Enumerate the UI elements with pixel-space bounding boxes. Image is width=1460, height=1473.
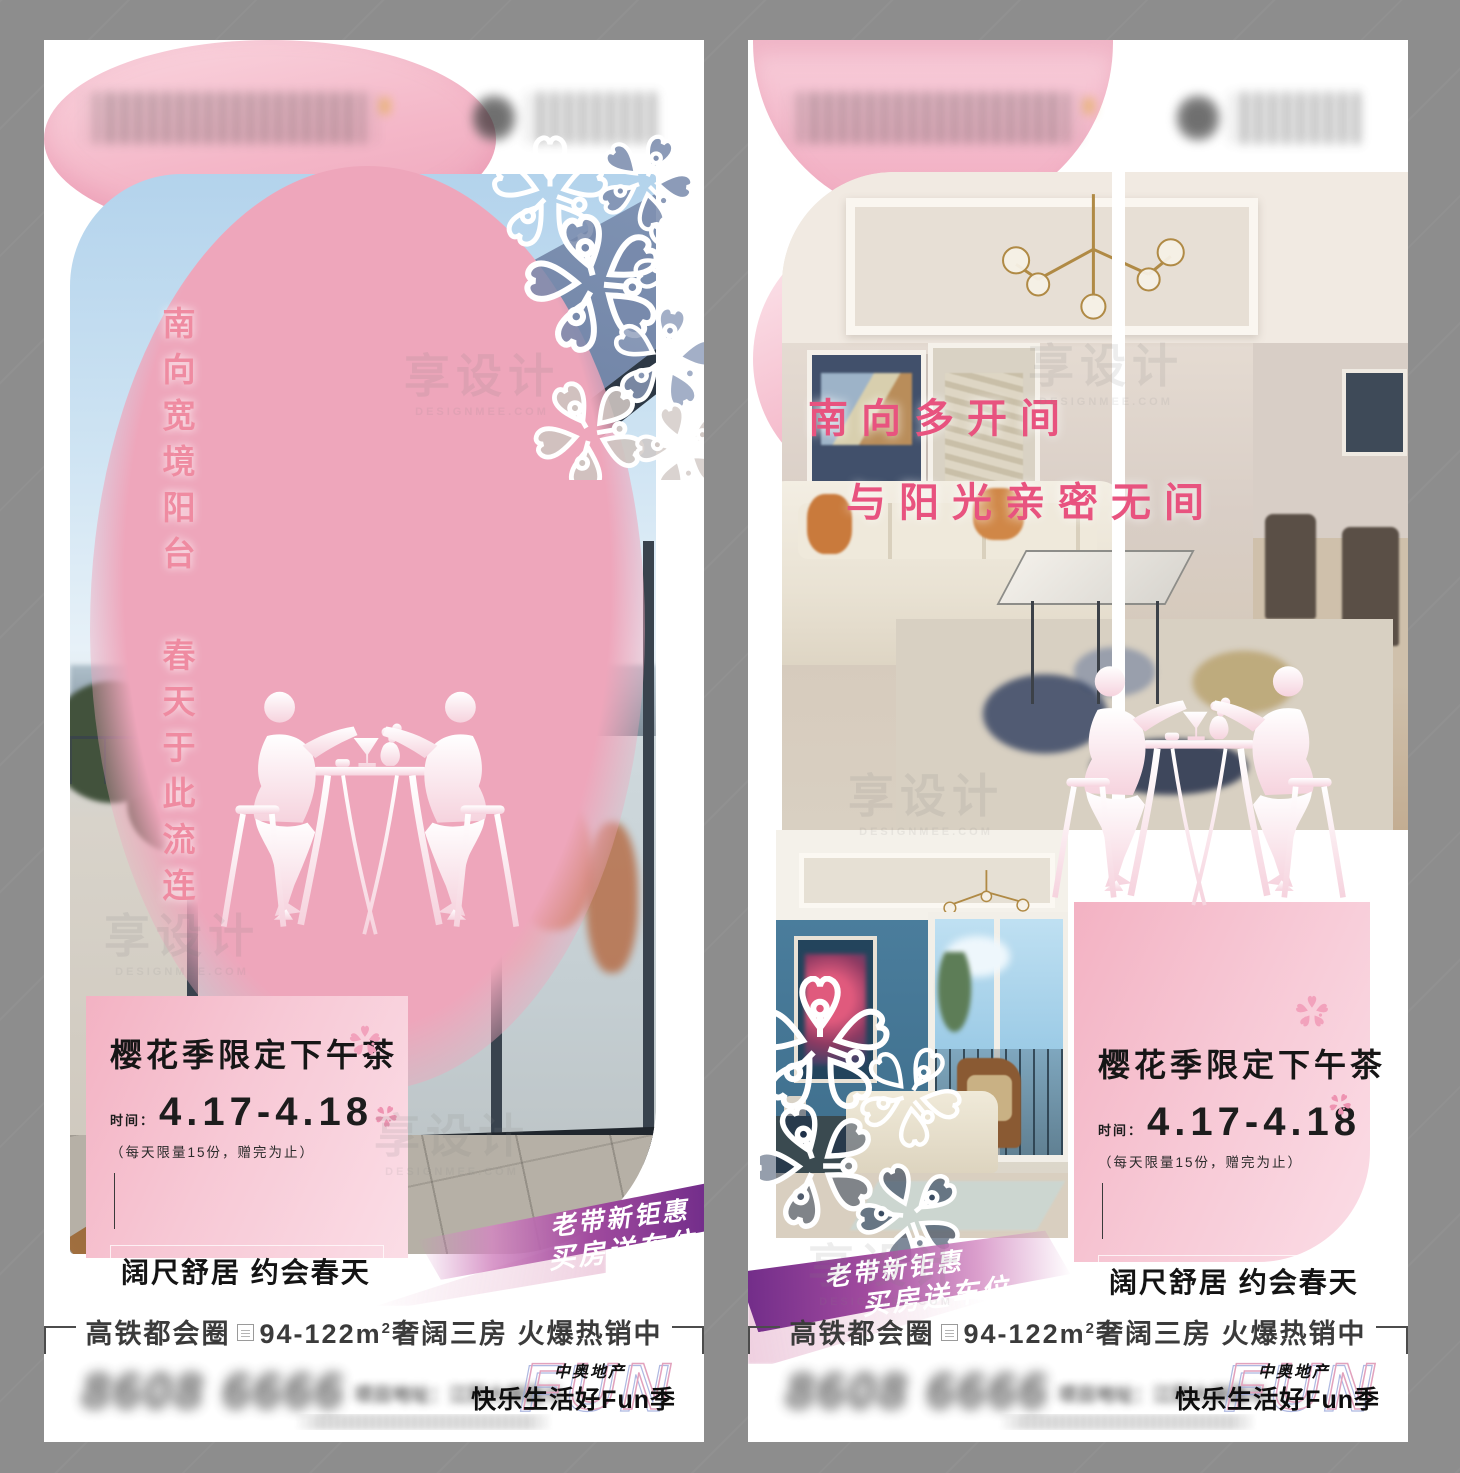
- petal-icon: [348, 1024, 382, 1058]
- logo-bars: [1228, 92, 1368, 144]
- bracket-right: [1376, 1326, 1408, 1354]
- strip-location: 高铁都会圈: [790, 1312, 935, 1351]
- strip-product: 奢阔三房 火爆热销中: [1096, 1312, 1367, 1351]
- developer-name: 中奥地产: [554, 1358, 626, 1382]
- event-title: 樱花季限定下午茶: [1098, 1040, 1386, 1086]
- logo-bars: [784, 92, 1084, 144]
- headline-line1: 南向多开间: [808, 397, 1073, 441]
- value-strip-text: 高铁都会圈 94-122m 2 奢阔三房 火爆热销中: [780, 1312, 1377, 1351]
- afternoon-tea-silhouettes: [168, 620, 572, 956]
- bracket-right: [672, 1326, 704, 1354]
- petal-icon: [1294, 994, 1330, 1030]
- divider-line: [114, 1173, 115, 1229]
- developer-logo-blurred: [784, 92, 1084, 144]
- logo-accent: [1084, 98, 1094, 114]
- bracket-left: [748, 1326, 780, 1354]
- divider-line: [1102, 1183, 1103, 1239]
- poster-right: 南向多开间 与阳光亲密无间 樱花季限定下午茶 时间： 4.17-4.18 （每天…: [748, 40, 1408, 1442]
- date-value: 4.17-4.18: [159, 1090, 373, 1135]
- strip-area: 94-122m: [964, 1319, 1086, 1350]
- headline-column: 南向宽境阳台: [152, 306, 200, 582]
- canvas: { "watermark": { "brand": "享设计", "domain…: [0, 0, 1460, 1473]
- campaign-logo: FUN FUN 中奥地产 快乐生活好Fun季: [453, 1352, 678, 1438]
- afternoon-tea-silhouettes: [1000, 596, 1398, 926]
- logo-emblem-icon: [1176, 94, 1220, 142]
- footer: 8608 6666 项目地址：江阴大岸路与…… FUN FUN 中奥地产 快乐生…: [44, 1352, 704, 1442]
- petal-icon: [1328, 1092, 1352, 1116]
- bracket-left: [44, 1326, 76, 1354]
- hotline-blurred: 8608 6666: [786, 1362, 1049, 1420]
- event-copy: 樱花季限定下午茶 时间： 4.17-4.18 （每天限量15份，赠完为止） 阔尺…: [110, 1030, 398, 1298]
- logo-accent: [380, 98, 390, 114]
- campaign-logo: FUN FUN 中奥地产 快乐生活好Fun季: [1157, 1352, 1382, 1438]
- campaign-slogan: 快乐生活好Fun季: [471, 1380, 676, 1416]
- event-panel: 樱花季限定下午茶 时间： 4.17-4.18 （每天限量15份，赠完为止） 阔尺…: [1074, 902, 1370, 1262]
- hotline-blurred: 8608 6666: [82, 1362, 345, 1420]
- promo-ribbon: 老带新钜惠 买房送车位: [436, 1174, 698, 1306]
- headline-line2: 与阳光亲密无间: [846, 470, 1217, 528]
- developer-logo-blurred: [80, 92, 380, 144]
- petal-icon: [374, 1104, 398, 1128]
- building-icon: [941, 1324, 958, 1341]
- brand-logo-blurred: [1176, 92, 1368, 144]
- poster-left: 南向宽境阳台 春天于此流连 樱花季限定下午茶 时间： 4.17-4.18 （每天…: [44, 40, 704, 1442]
- strip-sup: 2: [1086, 1320, 1096, 1337]
- developer-name: 中奥地产: [1258, 1358, 1330, 1382]
- building-icon: [237, 1324, 254, 1341]
- strip-sup: 2: [382, 1320, 392, 1337]
- event-note: （每天限量15份，赠完为止）: [110, 1141, 398, 1161]
- logo-bars: [80, 92, 380, 144]
- value-strip-text: 高铁都会圈 94-122m 2 奢阔三房 火爆热销中: [76, 1312, 673, 1351]
- event-note: （每天限量15份，赠完为止）: [1098, 1151, 1386, 1171]
- strip-area: 94-122m: [260, 1319, 382, 1350]
- event-copy: 樱花季限定下午茶 时间： 4.17-4.18 （每天限量15份，赠完为止） 阔尺…: [1098, 1040, 1386, 1308]
- event-slogan: 阔尺舒居 约会春天: [110, 1245, 384, 1298]
- event-date: 时间： 4.17-4.18: [110, 1090, 398, 1135]
- footer: 8608 6666 项目地址：江阴大岸路与…… FUN FUN 中奥地产 快乐生…: [748, 1352, 1408, 1442]
- headline: 南向多开间 与阳光亲密无间: [808, 386, 1217, 528]
- strip-product: 奢阔三房 火爆热销中: [392, 1312, 663, 1351]
- strip-location: 高铁都会圈: [86, 1312, 231, 1351]
- date-label: 时间：: [1098, 1120, 1143, 1139]
- sakura-outline-overlay: [760, 976, 984, 1262]
- campaign-slogan: 快乐生活好Fun季: [1175, 1380, 1380, 1416]
- chandelier: [998, 192, 1189, 337]
- event-slogan: 阔尺舒居 约会春天: [1098, 1255, 1372, 1308]
- sakura-cluster-decoration: [430, 134, 704, 480]
- date-label: 时间：: [110, 1110, 155, 1129]
- ribbon-text: 老带新钜惠 买房送车位: [543, 1195, 696, 1277]
- hall-art: [1342, 369, 1407, 456]
- event-panel: 樱花季限定下午茶 时间： 4.17-4.18 （每天限量15份，赠完为止） 阔尺…: [86, 996, 408, 1258]
